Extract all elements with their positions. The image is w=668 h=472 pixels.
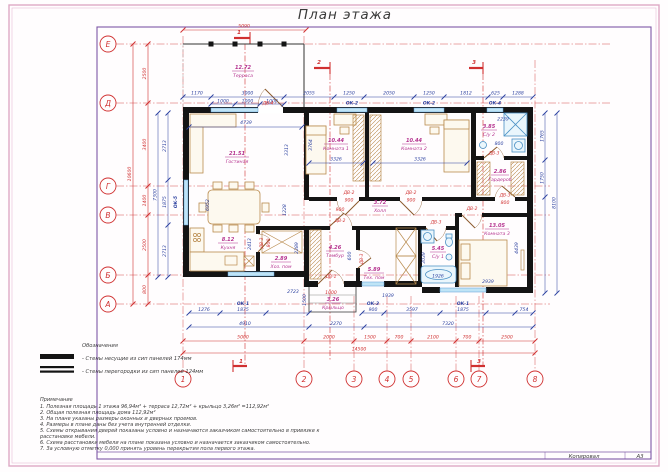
drawing-sheet: План этажа 1 2 3 1 3 Е Д Г [0, 0, 668, 472]
svg-text:4.26: 4.26 [329, 245, 342, 251]
svg-text:С/у 1: С/у 1 [432, 254, 444, 260]
section-mark-2: 2 [317, 60, 321, 66]
dim-label: 800 [501, 200, 510, 206]
axis-letter: Д [104, 99, 111, 108]
toilet [446, 238, 453, 247]
kitchen-counter [190, 228, 204, 252]
wardrobe-room2 [370, 115, 381, 181]
dim-label: 2500 [142, 239, 148, 251]
dim-label: 2100 [427, 335, 439, 341]
window-ok1-kitchen [228, 272, 274, 276]
dim-label: 2270 [330, 321, 342, 327]
dim-label: 7320 [442, 321, 454, 327]
dim-label: 1170 [191, 91, 203, 97]
tambur-closet [310, 230, 321, 279]
dim-label: 1288 [512, 91, 524, 97]
door-tag-dv3: ДВ-3 [259, 237, 265, 249]
dim-label: 2500 [501, 335, 513, 341]
dim-label: 900 [369, 307, 378, 313]
axis-letter: А [104, 300, 110, 309]
wardrobe-room1 [353, 115, 364, 181]
section-mark-3: 3 [472, 60, 476, 66]
svg-text:2.86: 2.86 [494, 169, 507, 175]
dim-label: 1250 [423, 91, 435, 97]
svg-text:13.05: 13.05 [489, 223, 506, 229]
dim-label: 800 [266, 239, 272, 248]
dim-label: 2500 [142, 68, 148, 80]
dim-label: 2050 [383, 91, 395, 97]
axis-number: 1 [181, 375, 186, 384]
dim-label: 1875 [237, 307, 249, 313]
window-ok1-room3 [440, 288, 486, 292]
axis-letter: В [105, 211, 110, 220]
axis-letter: Е [106, 40, 111, 49]
svg-text:10.44: 10.44 [406, 138, 423, 144]
door-tag-dv2: ДВ-2 [466, 206, 478, 212]
door-tag-dv3: ДВ-3 [359, 253, 365, 265]
wardrobe-shelves-right [511, 162, 524, 195]
dim-label: 3313 [284, 144, 290, 156]
svg-text:С/у 2: С/у 2 [483, 132, 495, 138]
window-ok4-su2 [487, 108, 503, 112]
axis-number: 5 [409, 375, 414, 384]
dim-label: 4739 [240, 120, 252, 126]
svg-text:12.72: 12.72 [235, 65, 252, 71]
window-tag-ok5: ОК-5 [173, 196, 179, 208]
svg-text:Тамбур: Тамбур [326, 253, 344, 259]
door-tag-dv3: ДВ-3 [430, 220, 442, 226]
dim-label: 8100 [552, 197, 558, 209]
axis-letter: Б [105, 271, 110, 280]
legend-partition-wall-label: - Стены перегородки из сип панелей 124мм [82, 369, 203, 375]
sink-su2 [480, 142, 487, 149]
axis-number: 2 [302, 375, 307, 384]
dim-label: 14500 [352, 347, 367, 353]
window-tag-ok1: ОК-1 [457, 301, 469, 307]
dim-label: 2239 [497, 117, 509, 123]
dim-label: 2055 [303, 91, 315, 97]
dim-label: 4439 [514, 242, 520, 254]
window-ok2-room2 [414, 108, 444, 112]
door-tag-dv4: ДВ-4 [262, 101, 274, 107]
dim-label: 600 [347, 252, 353, 261]
door-tag-dv2: ДВ-2 [405, 190, 417, 196]
dim-label: 1875 [162, 196, 168, 208]
svg-text:Гардероб: Гардероб [488, 177, 511, 183]
page-title: План этажа [298, 7, 392, 23]
window-tag-ok2: ОК-2 [423, 101, 435, 107]
dim-label: 1926 [432, 274, 444, 280]
section-mark-1: 1 [237, 30, 241, 36]
dim-label: 1000 [325, 290, 337, 296]
svg-text:3.85: 3.85 [483, 124, 496, 130]
dim-label: 900 [407, 198, 416, 204]
dim-label: 1250 [343, 91, 355, 97]
window-ok2-room1 [337, 108, 367, 112]
dim-label: 4910 [239, 321, 251, 327]
dim-label: 3326 [330, 157, 342, 163]
dim-label: 1939 [382, 293, 394, 299]
section-mark-1b: 1 [239, 359, 243, 365]
axis-number: 6 [454, 375, 459, 384]
dim-label: 2713 [162, 140, 168, 152]
svg-text:3.72: 3.72 [374, 200, 387, 206]
svg-text:Тех. пом: Тех. пом [364, 275, 385, 281]
dim-label: 1228 [282, 204, 288, 216]
svg-text:Холл: Холл [373, 208, 386, 214]
axis-number: 7 [477, 375, 482, 384]
note-line: 7. За условную отметку 0,000 принять уро… [40, 446, 255, 452]
svg-text:Комната 2: Комната 2 [401, 146, 427, 152]
dim-label: 3400 [142, 139, 148, 151]
dim-label: 3000 [242, 91, 254, 97]
dim-label: 1000 [217, 98, 229, 104]
section-mark-3b: 3 [477, 359, 481, 365]
dim-label: 2000 [323, 335, 335, 341]
axis-number: 8 [533, 375, 538, 384]
dim-label: 800 [495, 141, 504, 147]
dim-label: 1750 [540, 172, 546, 184]
svg-text:10.44: 10.44 [328, 138, 345, 144]
window-tag-ok2: ОК-2 [346, 101, 358, 107]
window-tag-ok3: ОК-3 [367, 301, 379, 307]
dim-label: 2723 [287, 289, 299, 295]
dim-label: 1765 [540, 130, 546, 142]
dim-label: 2939 [482, 279, 494, 285]
dim-label: 1500 [302, 294, 308, 306]
dim-label: 700 [463, 335, 472, 341]
window-tag-ok1: ОК-1 [237, 301, 249, 307]
footer-format: А3 [635, 454, 644, 460]
dim-label: 3764 [308, 139, 314, 151]
floor-plan-svg: План этажа 1 2 3 1 3 Е Д Г [0, 0, 668, 472]
door-tag-dv1: ДВ-1 [325, 274, 337, 280]
dining-table [208, 190, 260, 224]
svg-text:Крыльцо: Крыльцо [322, 305, 344, 311]
dim-label: 900 [345, 198, 354, 204]
sheet-frame [9, 5, 659, 466]
dim-label: 1000 [242, 98, 254, 104]
svg-text:21.51: 21.51 [229, 151, 245, 157]
svg-text:5.45: 5.45 [432, 246, 445, 252]
svg-text:Хоз. пом: Хоз. пом [269, 264, 291, 270]
dim-label: 1812 [460, 91, 472, 97]
dim-label: 3039 [421, 252, 427, 264]
dim-label: 1500 [364, 335, 376, 341]
dim-label: 3597 [406, 307, 418, 313]
dim-label: 10600 [127, 167, 133, 182]
svg-text:Комната 1: Комната 1 [323, 146, 349, 152]
window-ok3-tech [362, 282, 384, 286]
footer-kopiroval: Копировал [569, 454, 600, 460]
axis-number: 3 [352, 375, 357, 384]
svg-text:8.12: 8.12 [222, 237, 235, 243]
legend-bearing-wall-symbol [40, 354, 74, 359]
sink-su1 [446, 254, 452, 260]
notes-heading: Примечание [40, 397, 73, 403]
svg-text:2.89: 2.89 [275, 256, 288, 262]
window-tag-ok4: ОК-4 [489, 101, 501, 107]
axis-number: 4 [385, 375, 390, 384]
dim-label: 700 [395, 335, 404, 341]
dim-label: 5000 [237, 335, 249, 341]
legend-bearing-wall-label: - Стены несущие из сип панелей 174мм [82, 356, 192, 362]
dim-label: 2413 [247, 238, 253, 250]
svg-text:3.26: 3.26 [327, 297, 340, 303]
dim-label: 2289 [294, 242, 300, 254]
dim-label: 2713 [162, 245, 168, 257]
door-tag-dv2: ДВ-2 [343, 190, 355, 196]
dim-label: 800 [142, 285, 148, 294]
door-tag-dv3: ДВ-3 [488, 151, 500, 157]
legend-partition-wall-symbol [40, 366, 74, 368]
dim-label: 5090 [238, 24, 250, 30]
svg-text:Терраса: Терраса [233, 73, 253, 79]
dim-label: 3326 [414, 157, 426, 163]
door-tag-dv3: ДВ-3 [499, 193, 511, 199]
svg-text:Кухня: Кухня [221, 245, 236, 251]
svg-text:Комната 3: Комната 3 [484, 231, 510, 237]
dim-label: 900 [336, 207, 345, 213]
svg-text:Гостиная: Гостиная [226, 159, 249, 165]
dim-label: 6952 [205, 199, 211, 211]
window-living-glazing [211, 108, 258, 112]
svg-text:5.89: 5.89 [368, 267, 381, 273]
window-ok5-living [184, 180, 188, 225]
dim-label: 1400 [142, 195, 148, 207]
sofa [190, 114, 236, 127]
dim-label: 754 [520, 307, 529, 313]
door-tag-dv2: ДВ-2 [334, 218, 346, 224]
dim-label: 1875 [457, 307, 469, 313]
dim-label: 7300 [153, 189, 159, 201]
dim-label: 625 [491, 91, 500, 97]
legend-heading: Обозначения [82, 343, 118, 349]
dim-label: 1276 [198, 307, 210, 313]
